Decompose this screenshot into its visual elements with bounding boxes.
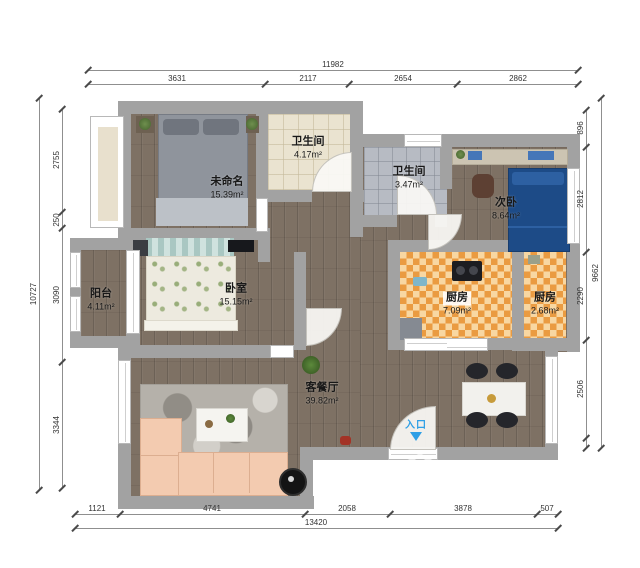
wall <box>512 240 524 351</box>
sofa-cushion-line <box>249 453 250 493</box>
room-label-bedroom2: 次卧 8.64m² <box>492 197 520 222</box>
dim-line <box>62 109 63 488</box>
dim-top-total: 11982 <box>322 60 344 69</box>
wall <box>118 101 362 114</box>
sofa-seats <box>178 452 288 496</box>
dim-bottom-seg: 2058 <box>338 504 356 513</box>
dim-left-seg: 3090 <box>52 286 61 304</box>
table-decor <box>205 420 213 428</box>
door-opening <box>256 198 268 232</box>
dim-line <box>88 84 578 85</box>
dim-line <box>75 528 558 529</box>
pillow <box>163 119 199 135</box>
wall <box>388 240 400 350</box>
bed-blue-fold <box>508 226 568 228</box>
wall <box>294 252 306 350</box>
tv-unit <box>228 240 254 252</box>
pillow <box>203 119 239 135</box>
wall <box>118 345 270 358</box>
dim-top-seg: 2862 <box>509 74 527 83</box>
bed-floral-headboard <box>146 238 234 258</box>
wall <box>352 215 397 227</box>
brand-watermark: 小尼宅配 <box>452 458 616 509</box>
room-label-unnamed: 未命名 15.39m² <box>210 176 243 201</box>
decor-red <box>340 436 351 445</box>
wall <box>440 147 452 189</box>
bay-window-glass <box>96 125 120 223</box>
dim-bottom-seg: 4741 <box>203 504 221 513</box>
dim-right-seg: 2290 <box>576 287 585 305</box>
sliding-door-kitchen <box>404 338 488 351</box>
plant-large <box>302 356 320 374</box>
dim-line <box>75 514 558 515</box>
brand-logo-icon <box>393 452 447 510</box>
plant <box>139 118 151 130</box>
sink <box>413 277 427 286</box>
dining-chair <box>466 363 488 379</box>
plant <box>456 150 465 159</box>
sofa-chaise <box>140 418 182 496</box>
dining-chair <box>496 412 518 428</box>
speaker-dot <box>288 476 294 482</box>
dining-decor <box>487 394 496 403</box>
room-label-living: 客餐厅 39.82m² <box>305 382 338 407</box>
floor-plan: 入口 卫生间 4.17m² 未命名 15.39m² 卫生间 3.47m² 次卧 … <box>0 0 640 568</box>
sofa-cushion-line <box>213 453 214 493</box>
door-opening <box>270 345 294 358</box>
entrance-marker: 入口 <box>398 416 434 441</box>
dim-right-seg: 2812 <box>576 190 585 208</box>
bed-footboard <box>144 320 238 331</box>
room-label-bathroom1: 卫生间 4.17m² <box>292 136 325 161</box>
chair-brown <box>472 174 494 198</box>
plant <box>246 118 258 130</box>
window <box>118 360 131 444</box>
shelf-item-blue <box>468 151 482 160</box>
dim-left-seg: 250 <box>52 213 61 226</box>
bay-window <box>90 116 124 228</box>
outside-patch-1 <box>558 352 582 462</box>
stove-burner <box>469 266 478 275</box>
dim-top-seg: 3631 <box>168 74 186 83</box>
dim-line <box>88 70 578 71</box>
room-label-balcony: 阳台 4.11m² <box>87 288 114 313</box>
entrance-label: 入口 <box>398 416 434 431</box>
wall <box>350 134 580 147</box>
stove-burner <box>456 266 465 275</box>
table-decor-plant <box>226 414 235 423</box>
window-balcony-door <box>126 250 140 334</box>
dim-bottom-total: 13420 <box>305 518 327 527</box>
bed-blanket <box>156 198 248 226</box>
wall <box>488 338 516 350</box>
coffee-table <box>196 408 248 442</box>
window <box>545 356 558 444</box>
dim-line <box>586 110 587 448</box>
outside-patch-2 <box>312 460 360 500</box>
room-label-bedroom1: 卧室 15.15m² <box>219 283 252 308</box>
window <box>404 134 442 147</box>
dim-right-seg: 896 <box>576 121 585 134</box>
shelf-item-blue <box>528 151 554 160</box>
dining-chair <box>466 412 488 428</box>
sofa-cushion-line <box>141 455 179 456</box>
dim-left-total: 10727 <box>29 283 38 305</box>
room-label-bathroom2: 卫生间 3.47m² <box>393 166 426 191</box>
window <box>70 296 81 332</box>
entrance-arrow-icon <box>410 432 422 441</box>
dim-top-seg: 2654 <box>394 74 412 83</box>
pillow <box>512 172 564 185</box>
dim-line <box>39 98 40 490</box>
room-label-kitchen1: 厨房 7.09m² <box>443 292 471 317</box>
dim-right-total: 9662 <box>591 264 600 282</box>
dim-bottom-seg: 1121 <box>88 504 105 513</box>
dim-left-seg: 3344 <box>52 416 61 434</box>
dim-right-seg: 2506 <box>576 380 585 398</box>
dining-chair <box>496 363 518 379</box>
wall <box>258 228 270 262</box>
dim-top-seg: 2117 <box>299 74 316 83</box>
dim-left-seg: 2755 <box>52 151 61 169</box>
room-label-kitchen2: 厨房 2.68m² <box>531 292 559 317</box>
window <box>70 252 81 288</box>
dim-line <box>601 98 602 448</box>
speaker <box>279 468 307 496</box>
kitchen2-item <box>528 255 540 264</box>
counter <box>400 318 422 340</box>
